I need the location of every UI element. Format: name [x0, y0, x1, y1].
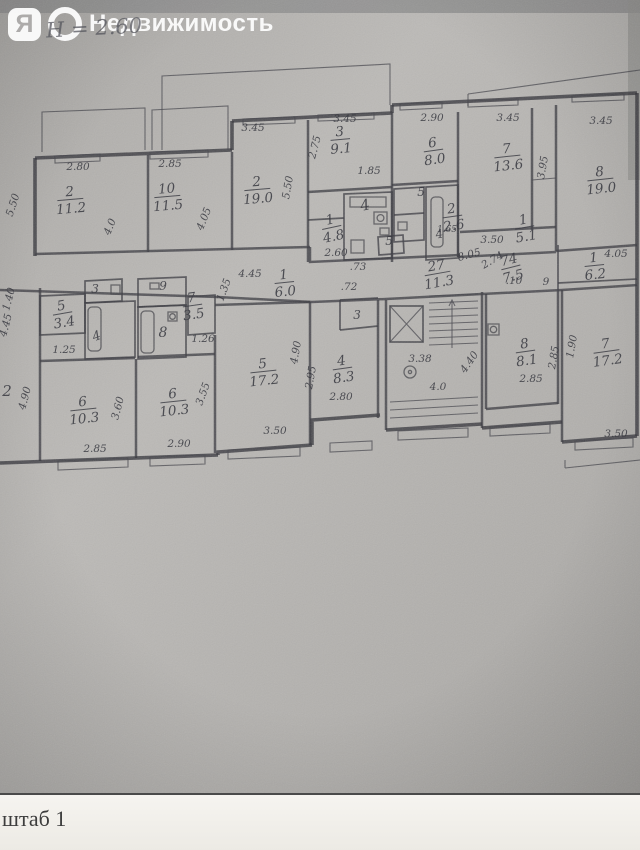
scale-note: штаб 1 [2, 806, 66, 832]
height-note: Н = 2.60 [45, 14, 142, 43]
grain-overlay [0, 0, 640, 850]
scanned-floorplan-photo: 211.21011.5219.039.168.0713.6819.014.815… [0, 0, 640, 850]
document-footer-strip [0, 793, 640, 850]
yandex-logo-icon: Я [8, 8, 41, 41]
floorplan-drawing: 211.21011.5219.039.168.0713.6819.014.815… [0, 0, 640, 850]
